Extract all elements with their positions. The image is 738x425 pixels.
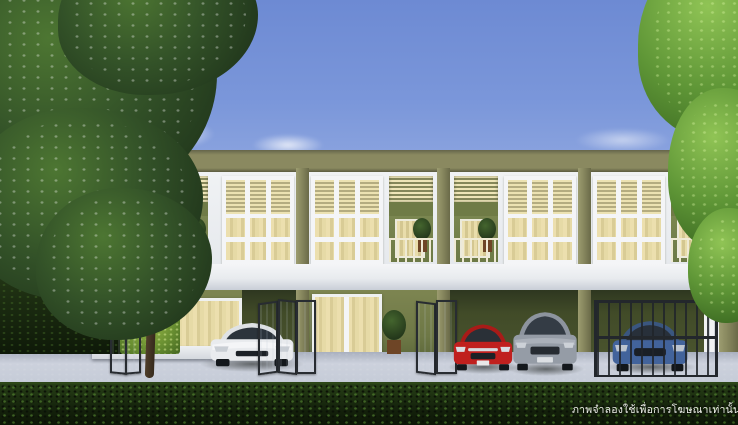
window-mullion bbox=[548, 180, 553, 214]
potted-tree bbox=[382, 310, 406, 340]
advertising-disclaimer-watermark: ภาพจำลองใช้เพื่อการโฆษณาเท่านั้น bbox=[572, 401, 730, 418]
louver-balcony-panel bbox=[389, 176, 433, 262]
window-mullion bbox=[315, 237, 379, 242]
floor-band bbox=[143, 264, 738, 291]
balcony bbox=[389, 216, 433, 262]
facade-pillar bbox=[578, 168, 591, 264]
window-glass bbox=[597, 218, 661, 260]
unit-2-upper-facade bbox=[309, 172, 437, 264]
window-mullion bbox=[527, 180, 532, 214]
folding-gate-panel bbox=[416, 301, 436, 375]
window-mullion bbox=[616, 180, 621, 214]
window-mullion bbox=[508, 237, 572, 242]
gate-rail bbox=[597, 336, 715, 339]
unit-window bbox=[311, 176, 383, 264]
window-mullion bbox=[226, 237, 290, 242]
window-louver-top bbox=[226, 180, 290, 214]
window-mullion bbox=[245, 180, 250, 214]
louver-balcony-panel bbox=[454, 176, 498, 262]
window-mullion bbox=[344, 297, 349, 355]
window-louver-top bbox=[315, 180, 379, 214]
balcony-plant bbox=[413, 218, 431, 240]
window-mullion bbox=[355, 180, 360, 214]
folding-gate-panel bbox=[296, 300, 316, 374]
window-glass bbox=[315, 218, 379, 260]
window-mullion bbox=[637, 180, 642, 214]
balcony-railing bbox=[454, 238, 498, 262]
facade-pillar bbox=[437, 168, 450, 264]
rendering-canvas: ภาพจำลองใช้เพื่อการโฆษณาเท่านั้น bbox=[0, 0, 738, 425]
window-mullion bbox=[334, 180, 339, 214]
louver-slats bbox=[389, 176, 433, 202]
balcony-plant bbox=[478, 218, 496, 240]
facade-pillar bbox=[296, 168, 309, 264]
red-sedan-car bbox=[452, 318, 514, 372]
unit-3-upper-facade bbox=[450, 172, 578, 264]
window-glass bbox=[508, 218, 572, 260]
balcony-railing bbox=[389, 238, 433, 262]
folding-gate-panel bbox=[258, 301, 278, 376]
unit-window bbox=[222, 176, 294, 264]
unit-window bbox=[504, 176, 576, 264]
folding-gate-panel bbox=[278, 299, 297, 375]
unit-window bbox=[593, 176, 665, 264]
olive-wall bbox=[389, 202, 433, 216]
balcony bbox=[454, 216, 498, 262]
plant-pot bbox=[387, 340, 401, 354]
window-louver-top bbox=[508, 180, 572, 214]
window-louver-top bbox=[597, 180, 661, 214]
grey-suv-car bbox=[512, 308, 578, 372]
window-mullion bbox=[597, 237, 661, 242]
louver-slats bbox=[454, 176, 498, 202]
window-glass bbox=[226, 218, 290, 260]
window-mullion bbox=[266, 180, 271, 214]
olive-wall bbox=[454, 202, 498, 216]
facade-pillar bbox=[578, 290, 591, 358]
closed-folding-gate bbox=[594, 300, 718, 377]
unit-2-entrance-glazing bbox=[312, 294, 382, 358]
